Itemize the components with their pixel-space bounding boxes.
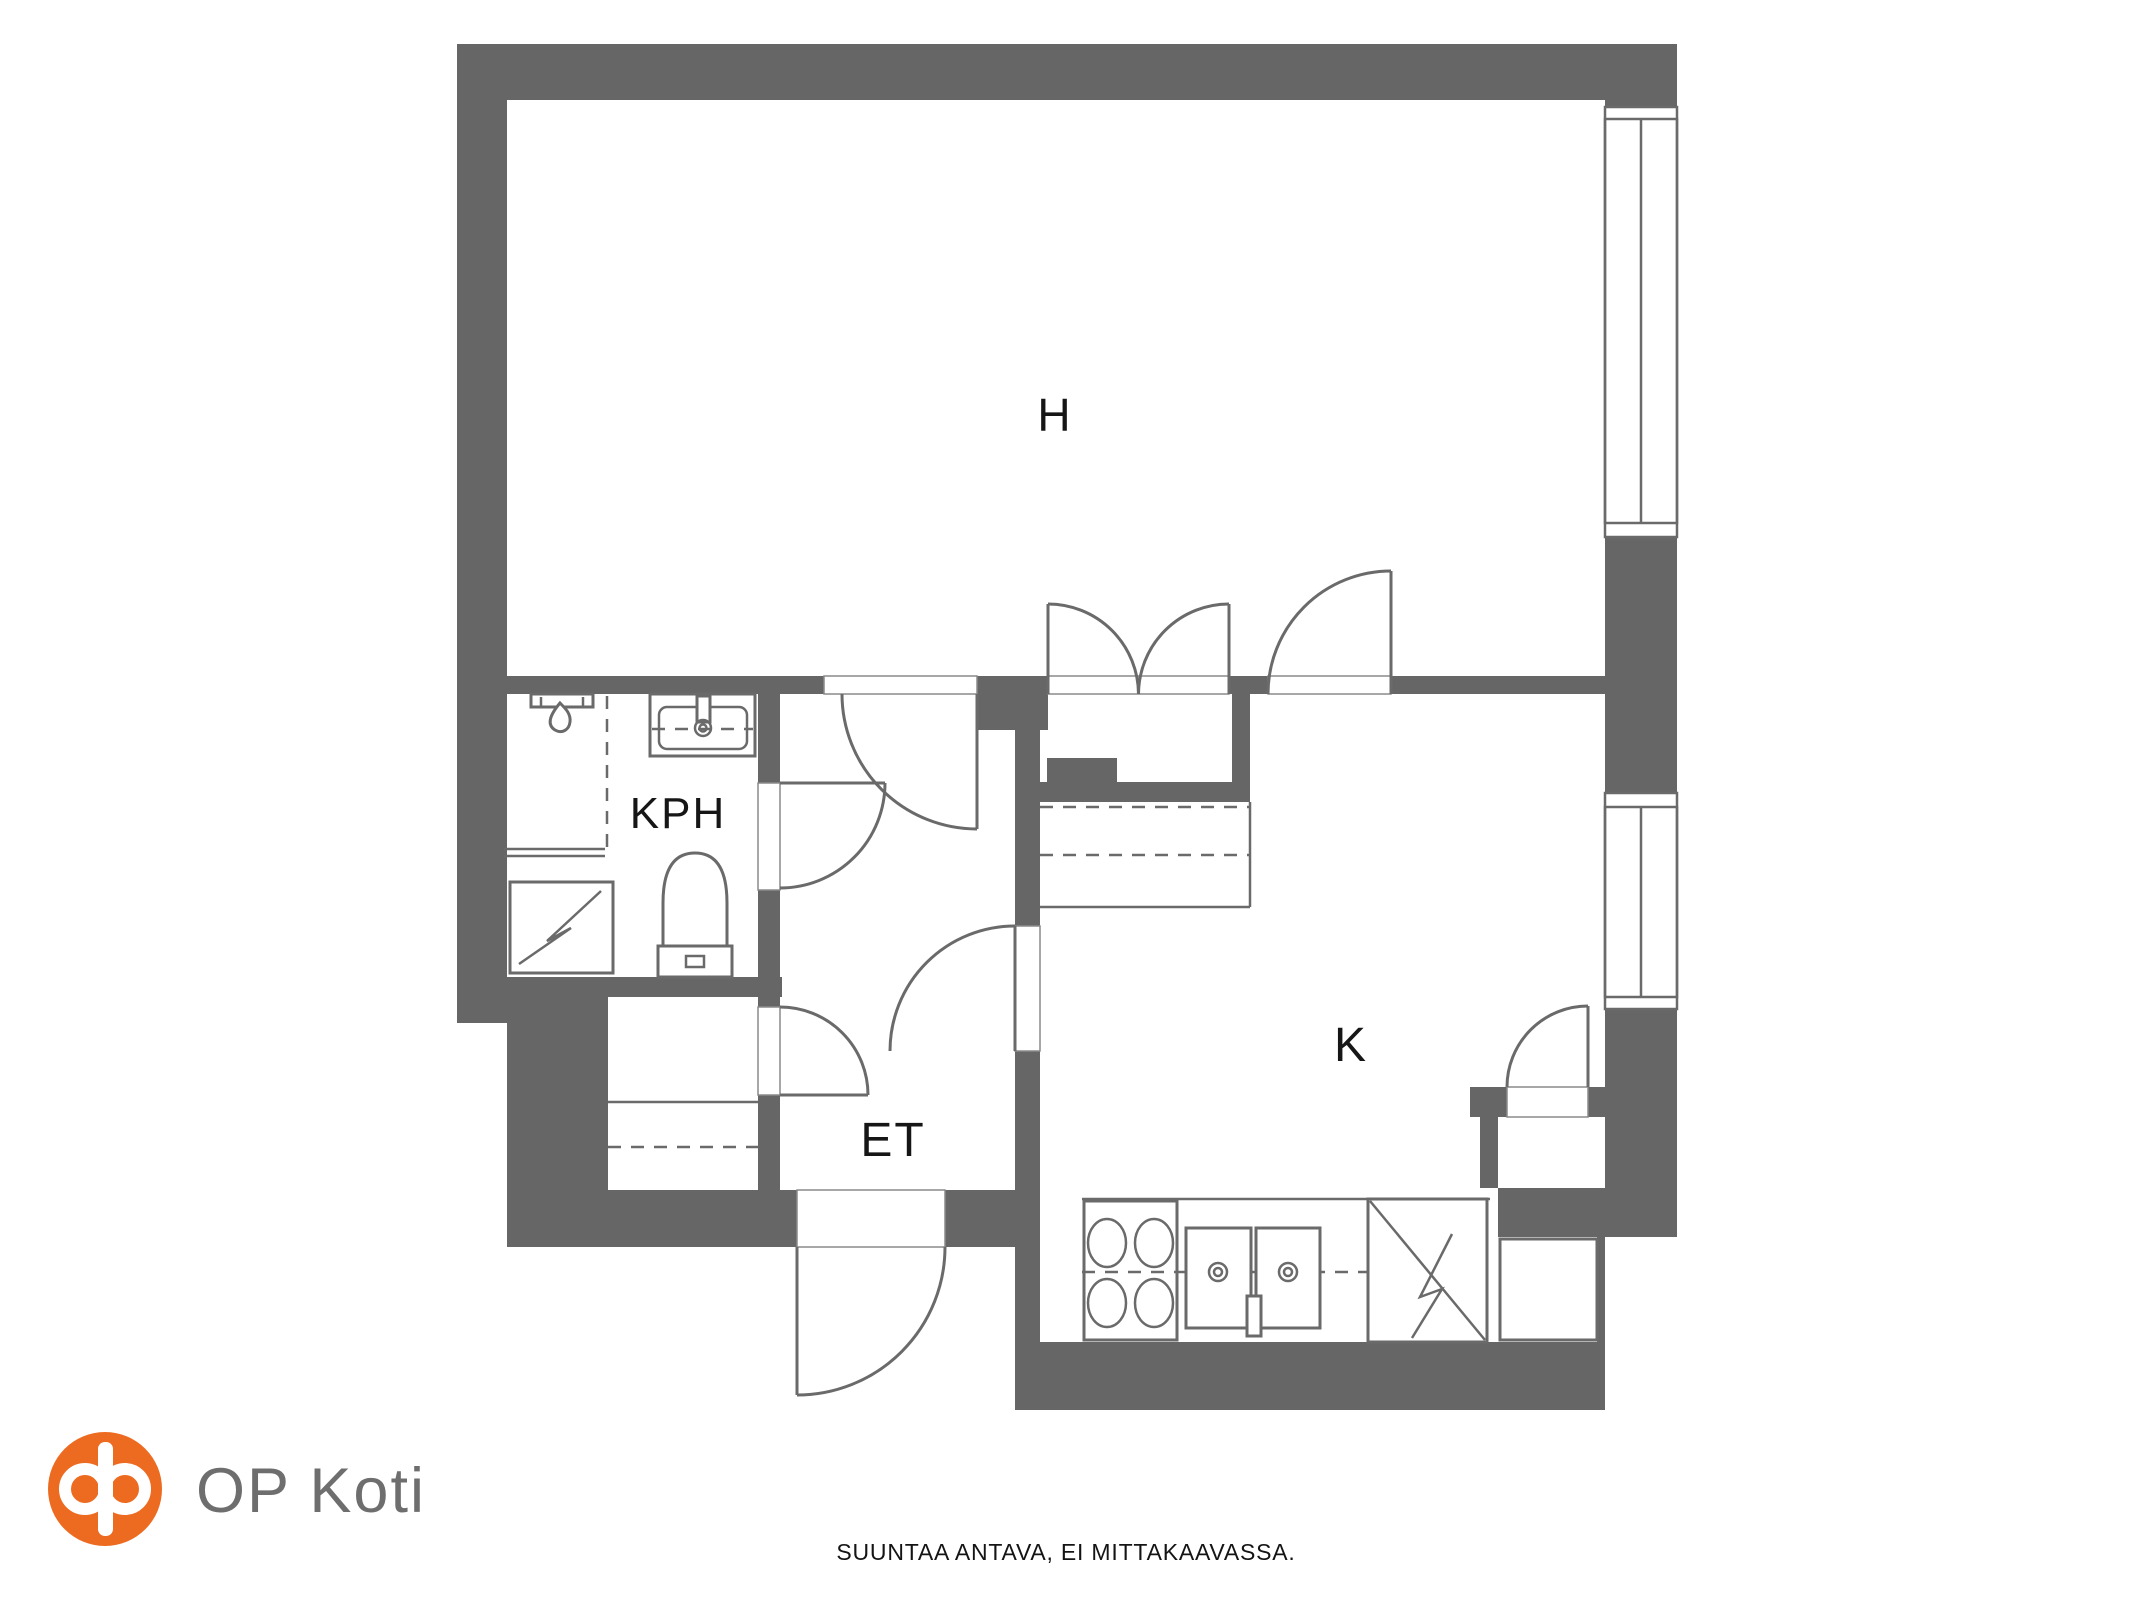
disclaimer-text: SUUNTAA ANTAVA, EI MITTAKAAVASSA. bbox=[836, 1539, 1295, 1565]
threshold-niche-door bbox=[1507, 1087, 1588, 1117]
floorplan-drawing: H KPH ET K OP Koti SUUNTAA ANTAVA, EI MI… bbox=[0, 0, 2133, 1600]
wall-hcloset-south bbox=[1040, 782, 1250, 802]
wall-closet-east-bottom bbox=[758, 1095, 780, 1190]
kitchen-sink-fixture bbox=[1186, 1228, 1320, 1336]
shower-fixture bbox=[531, 694, 593, 732]
door-et-closet bbox=[780, 1007, 868, 1095]
wall-etk-upper bbox=[1015, 730, 1040, 926]
wall-mid-seg2 bbox=[1229, 676, 1268, 694]
room-labels: H KPH ET K bbox=[630, 389, 1366, 1167]
door-k-niche bbox=[1507, 1006, 1588, 1087]
wall-left bbox=[457, 44, 507, 1023]
door-et-k bbox=[890, 926, 1015, 1051]
wall-closet-east-top bbox=[758, 997, 780, 1007]
threshold-hk-door bbox=[1268, 676, 1391, 694]
fridge-fixture bbox=[1368, 1199, 1487, 1342]
appliance-niche bbox=[1500, 1239, 1597, 1340]
threshold-entrance-door bbox=[797, 1190, 945, 1247]
wall-k-south bbox=[1015, 1342, 1605, 1410]
wall-jamb-block bbox=[977, 676, 1048, 730]
wall-mid-seg3 bbox=[1391, 676, 1607, 694]
shower-screen bbox=[504, 849, 605, 856]
wall-right-mid bbox=[1605, 537, 1677, 793]
threshold-closet-door bbox=[758, 1007, 780, 1095]
threshold-kph-door bbox=[758, 783, 780, 890]
wall-top bbox=[457, 44, 1677, 100]
threshold-etk-door bbox=[1015, 926, 1040, 1051]
window-1 bbox=[1605, 107, 1677, 537]
threshold-hall-door bbox=[824, 676, 977, 694]
bathroom-sink-fixture bbox=[650, 694, 755, 756]
et-closet-wardrobe bbox=[608, 1102, 758, 1147]
door-h-hall bbox=[842, 694, 977, 829]
walls bbox=[457, 44, 1677, 1410]
wall-kph-east-up bbox=[758, 676, 780, 783]
wall-se-band bbox=[1498, 1188, 1677, 1237]
wall-et-south-left bbox=[507, 1190, 797, 1247]
washing-machine-fixture bbox=[510, 882, 613, 973]
wall-niche-right bbox=[1588, 1087, 1605, 1117]
op-koti-logo: OP Koti bbox=[48, 1432, 426, 1546]
door-entrance bbox=[797, 1247, 945, 1395]
kitchen-fixtures bbox=[1040, 802, 1597, 1342]
wall-niche-left bbox=[1470, 1087, 1507, 1117]
wall-kph-south bbox=[502, 977, 782, 997]
window-2 bbox=[1605, 793, 1677, 1009]
room-label-h: H bbox=[1037, 389, 1070, 441]
toilet-fixture bbox=[658, 853, 732, 977]
wall-niche-west bbox=[1480, 1117, 1498, 1188]
wall-right-top bbox=[1605, 44, 1677, 107]
stove-fixture bbox=[1084, 1201, 1177, 1340]
floorplan-canvas: H KPH ET K OP Koti SUUNTAA ANTAVA, EI MI… bbox=[0, 0, 2133, 1600]
room-label-et: ET bbox=[860, 1114, 925, 1167]
room-label-k: K bbox=[1334, 1019, 1366, 1072]
brand-name: OP Koti bbox=[196, 1456, 426, 1526]
door-kph bbox=[780, 783, 885, 888]
room-label-kph: KPH bbox=[630, 789, 726, 838]
kitchen-counter-upper bbox=[1040, 802, 1250, 907]
wall-hcloset-stub bbox=[1047, 758, 1117, 782]
